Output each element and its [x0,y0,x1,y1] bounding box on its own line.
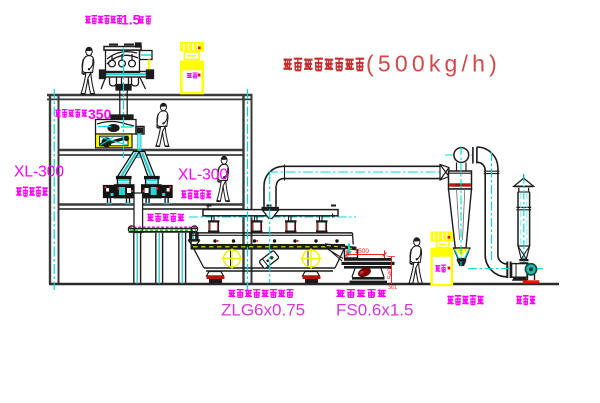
svg-text:FS0.6x1.5: FS0.6x1.5 [336,301,414,320]
svg-text:ZLG6x0.75: ZLG6x0.75 [221,301,305,320]
svg-text:1.5: 1.5 [121,12,141,28]
svg-text:250: 250 [455,183,463,188]
svg-text:XL-300: XL-300 [14,164,64,181]
svg-text:361: 361 [388,285,397,291]
svg-text:540: 540 [387,268,394,279]
svg-text:1500: 1500 [355,248,370,255]
svg-text:XL-300: XL-300 [178,167,228,184]
svg-text:(500kg/h): (500kg/h) [366,51,501,77]
